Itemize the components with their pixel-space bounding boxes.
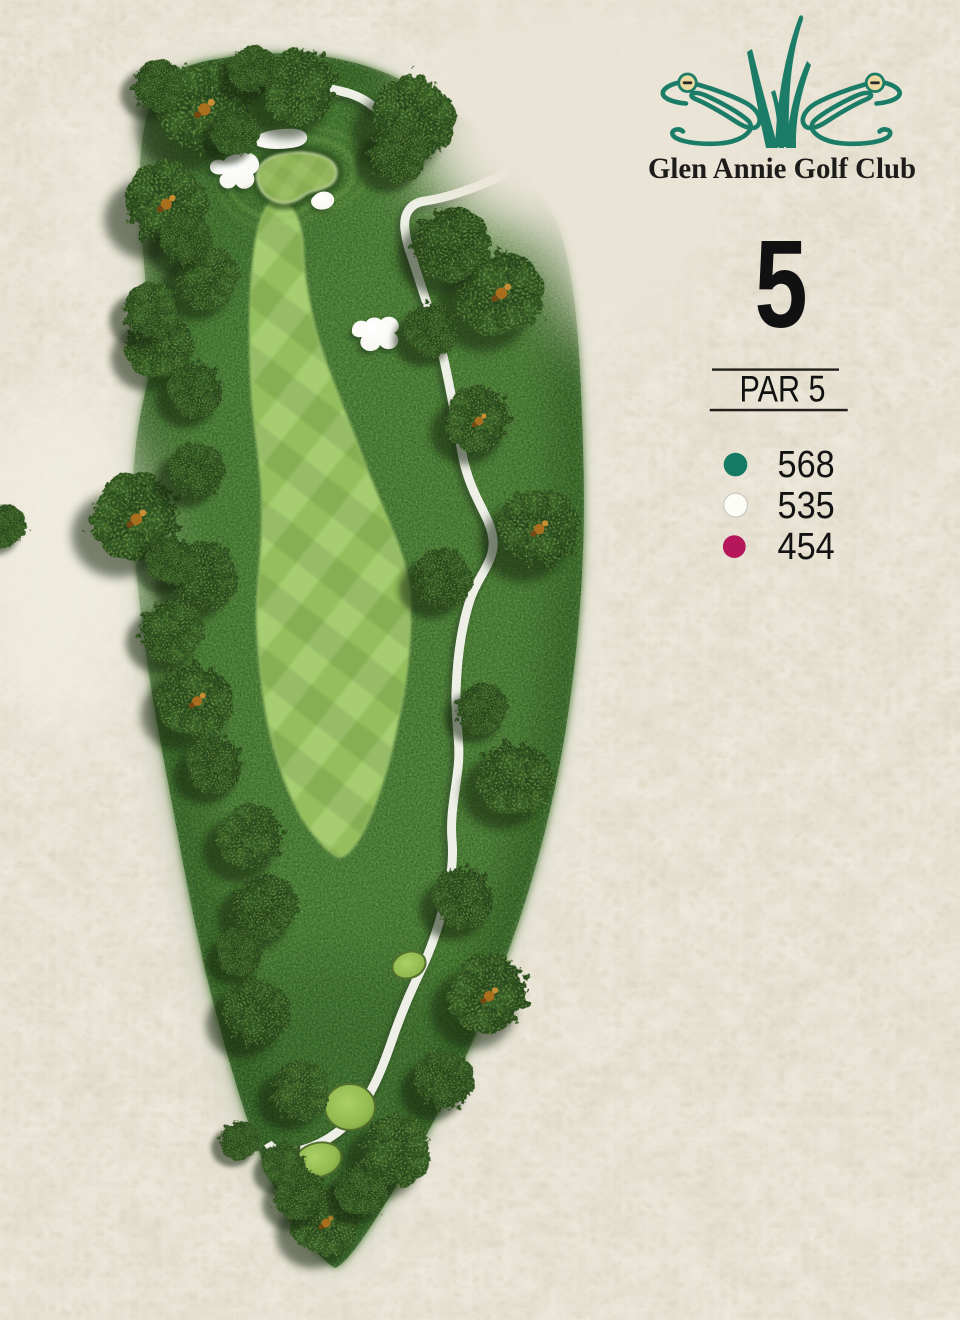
svg-text:PAR 5: PAR 5 <box>740 369 826 410</box>
svg-text:Glen Annie Golf Club: Glen Annie Golf Club <box>648 152 916 185</box>
svg-text:5: 5 <box>754 216 807 354</box>
svg-text:454: 454 <box>778 524 835 567</box>
svg-text:535: 535 <box>778 483 835 526</box>
svg-text:568: 568 <box>778 442 835 485</box>
